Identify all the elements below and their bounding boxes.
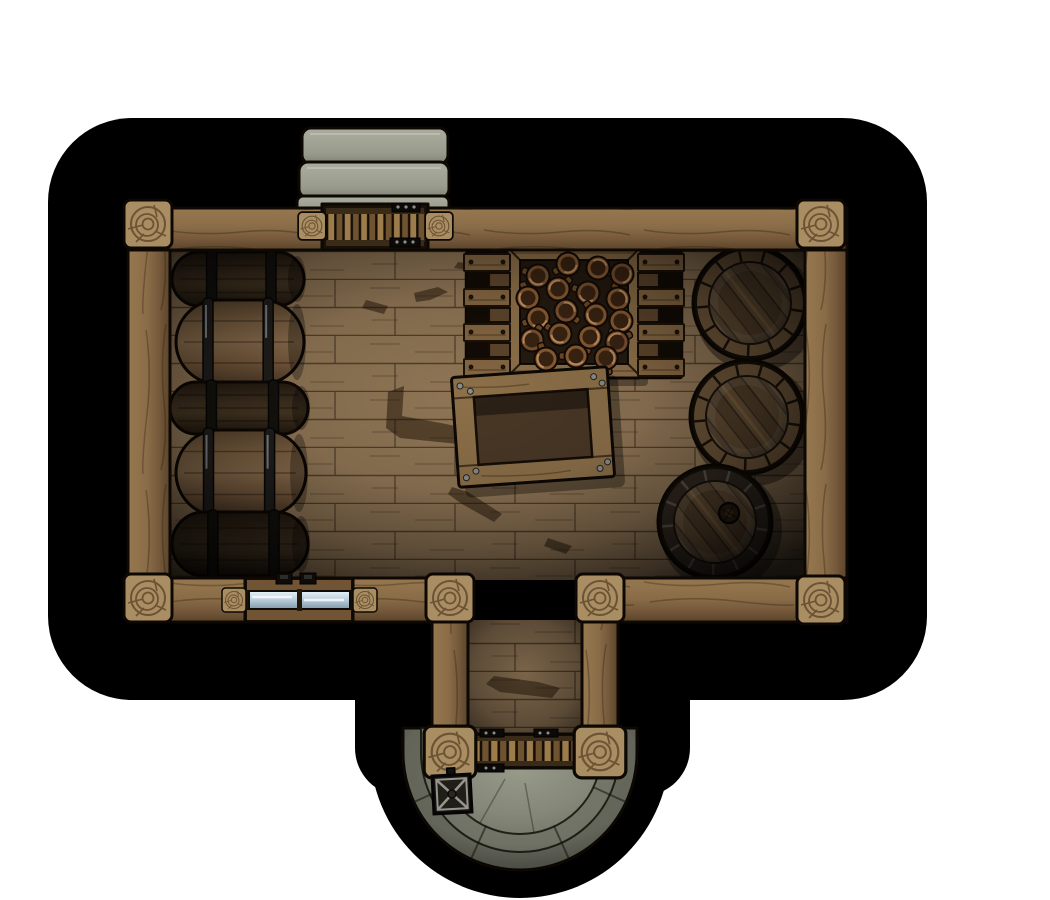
north-door-post-left [298,212,326,240]
window-mullion [297,589,302,611]
door-slat [336,212,343,242]
north-door-post-right [425,212,453,240]
door-slat [328,212,335,242]
window-post-left [222,588,246,612]
room-vignette [168,248,807,580]
door-slat [377,212,384,242]
door-slat [369,212,376,242]
door-slat [535,739,542,763]
door-slat [361,212,368,242]
corridor-vignette [466,620,584,738]
door-slat [491,739,498,763]
door-slat [562,739,569,763]
corner-post-top-left [124,200,172,248]
window-glass-left [249,591,298,609]
south-door[interactable] [468,729,582,772]
porch-post-right [574,726,626,778]
corner-post-bottom-left [124,574,172,622]
door-slat [553,739,560,763]
battlemap-canvas [0,0,1050,900]
door-slat [518,739,525,763]
corridor-post-northwest [426,574,474,622]
door-slat [344,212,351,242]
corner-post-bottom-right [797,576,845,624]
door-slat [509,739,516,763]
top-wall [128,208,847,250]
door-slat [544,739,551,763]
door-slat [353,212,360,242]
south-window[interactable] [245,573,353,622]
corridor-post-northeast [576,574,624,622]
window-bottom-plank [247,610,351,620]
battlemap-stage [0,0,1050,900]
right-wall [805,250,847,580]
left-wall [128,250,170,580]
window-top-plank [247,580,351,590]
corridor-west-wall [432,622,468,734]
north-door[interactable] [322,203,428,250]
door-slat [526,739,533,763]
corridor-east-wall [582,622,618,734]
corner-post-top-right [797,200,845,248]
door-slat [482,739,489,763]
door-slat [500,739,507,763]
lantern-knob [448,790,456,798]
window-post-right [353,588,377,612]
